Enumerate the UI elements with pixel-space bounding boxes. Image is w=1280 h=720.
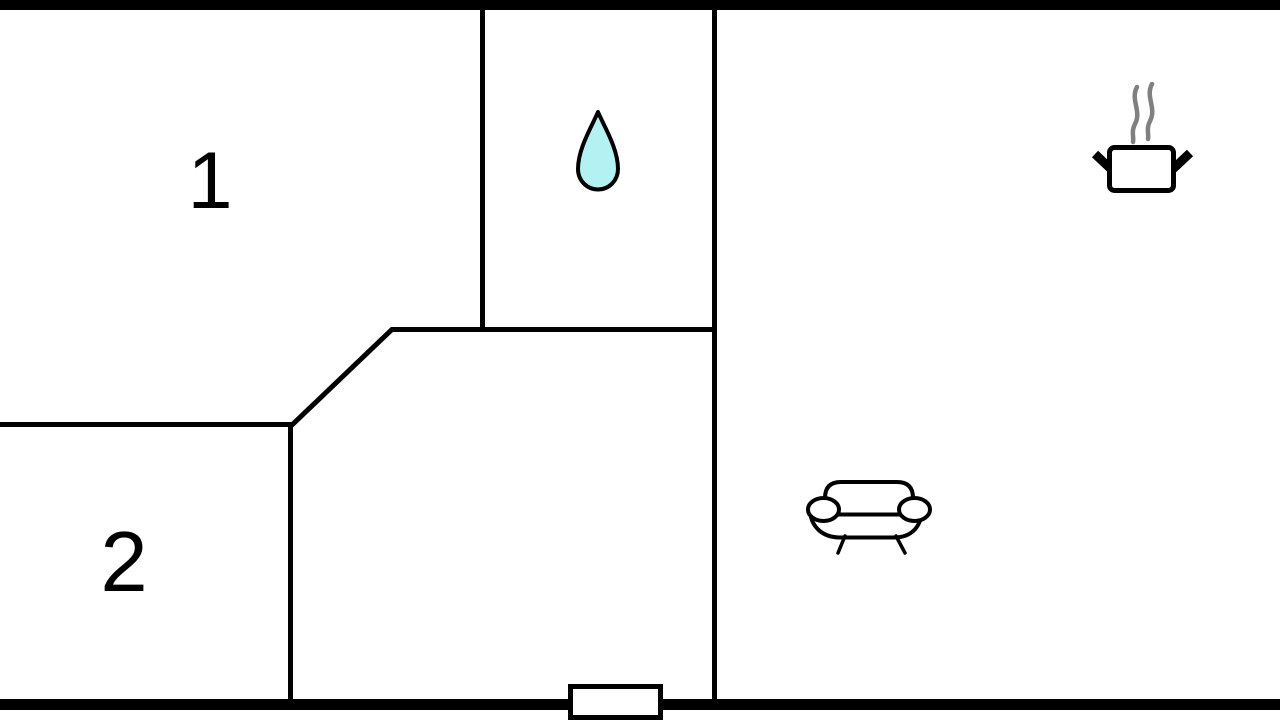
room-1-label: 1 <box>160 134 260 229</box>
floor-plan: 1 2 <box>0 0 1280 720</box>
wall-bathroom-left <box>480 10 485 331</box>
wall-top <box>0 0 1280 10</box>
room-2-label: 2 <box>74 514 174 611</box>
water-drop-icon <box>575 109 621 197</box>
wall-room2-right <box>288 425 293 699</box>
pot-body <box>1110 148 1174 191</box>
wall-room2-top <box>0 422 293 427</box>
sofa-armrest-right <box>899 498 930 521</box>
wall-center-vertical <box>712 10 717 699</box>
steam-line-right <box>1148 84 1152 139</box>
entrance-door <box>568 684 663 720</box>
water-drop-shape <box>578 112 618 190</box>
wall-hallway-top <box>391 327 717 332</box>
wall-diagonal <box>289 327 394 428</box>
sofa-icon <box>800 470 940 560</box>
steam-line-left <box>1133 87 1137 142</box>
cooking-pot-icon <box>1085 75 1200 195</box>
sofa-armrest-left <box>808 498 839 521</box>
